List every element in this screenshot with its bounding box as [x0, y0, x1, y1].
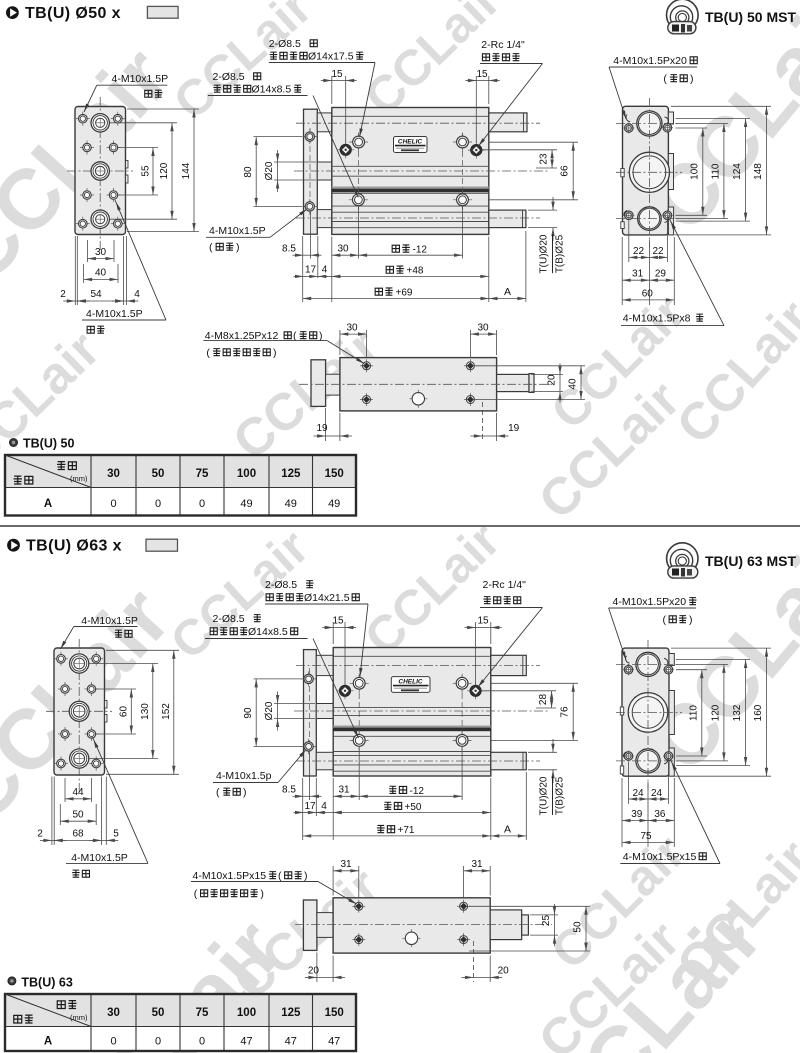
svg-text:47: 47: [328, 1036, 340, 1048]
svg-text:(: (: [194, 888, 198, 900]
svg-text:47: 47: [240, 1036, 252, 1048]
svg-text:22: 22: [633, 246, 645, 257]
svg-text:+69: +69: [396, 288, 413, 299]
svg-text:68: 68: [72, 829, 84, 840]
svg-text:120: 120: [159, 162, 170, 179]
svg-text:40: 40: [568, 378, 579, 390]
svg-text:2-Rc 1/4": 2-Rc 1/4": [483, 579, 527, 591]
svg-text:124: 124: [732, 163, 743, 180]
svg-text:CHELIC: CHELIC: [398, 139, 423, 146]
svg-text:100: 100: [237, 468, 256, 480]
svg-text:4-M10x1.5P: 4-M10x1.5P: [71, 852, 128, 864]
svg-text:47: 47: [285, 1036, 297, 1048]
svg-text:22: 22: [652, 246, 664, 257]
svg-text:20: 20: [547, 374, 558, 386]
svg-text:110: 110: [710, 163, 721, 179]
svg-text:T(B)Ø25: T(B)Ø25: [555, 234, 566, 273]
svg-text:TB(U) 50 MST: TB(U) 50 MST: [705, 9, 796, 25]
svg-text:15: 15: [477, 616, 489, 627]
svg-text:A: A: [44, 1036, 52, 1048]
svg-text:40: 40: [95, 268, 107, 279]
svg-text:150: 150: [325, 1007, 344, 1019]
svg-text:30: 30: [337, 244, 349, 255]
svg-text:0: 0: [110, 498, 116, 510]
svg-text:100: 100: [689, 163, 700, 180]
svg-text:+48: +48: [407, 266, 424, 277]
svg-text:4-M10x1.5Px20: 4-M10x1.5Px20: [613, 55, 687, 67]
svg-text:44: 44: [72, 787, 84, 798]
svg-text:4-M10x1.5Px15: 4-M10x1.5Px15: [193, 870, 267, 882]
svg-text:60: 60: [642, 289, 654, 300]
svg-text:30: 30: [107, 1007, 120, 1019]
svg-text:30: 30: [107, 468, 120, 480]
svg-text:24: 24: [651, 788, 663, 799]
svg-text:90: 90: [243, 707, 254, 719]
svg-text:T(B)Ø25: T(B)Ø25: [555, 776, 566, 815]
svg-text:Ø14x21.5: Ø14x21.5: [304, 592, 350, 604]
svg-text:4-M10x1.5Px15: 4-M10x1.5Px15: [623, 851, 697, 863]
svg-text:50: 50: [152, 1007, 165, 1019]
svg-text:4: 4: [134, 289, 140, 300]
svg-text:80: 80: [243, 166, 254, 178]
svg-text:17: 17: [305, 265, 317, 276]
svg-text:2-Ø8.5: 2-Ø8.5: [213, 613, 245, 625]
svg-text:31: 31: [338, 785, 350, 796]
svg-text:0: 0: [199, 1036, 205, 1048]
svg-text:Ø14x17.5: Ø14x17.5: [308, 51, 354, 63]
svg-text:36: 36: [654, 809, 666, 820]
svg-text:100: 100: [237, 1007, 256, 1019]
svg-text:50: 50: [152, 468, 165, 480]
svg-text:120: 120: [710, 704, 721, 721]
svg-text:): ): [236, 242, 240, 254]
svg-text:-12: -12: [413, 245, 428, 256]
svg-text:Ø14x8.5: Ø14x8.5: [248, 626, 288, 638]
svg-text:2-Ø8.5: 2-Ø8.5: [265, 579, 297, 591]
svg-text:-12: -12: [410, 786, 425, 797]
svg-text:TB(U) 63: TB(U) 63: [21, 976, 72, 990]
svg-text:(mm): (mm): [70, 1013, 88, 1022]
svg-text:76: 76: [560, 706, 571, 718]
svg-text:0: 0: [155, 1036, 161, 1048]
svg-text:Ø20: Ø20: [264, 161, 275, 180]
svg-text:CHELIC: CHELIC: [398, 679, 423, 686]
svg-text:2: 2: [60, 289, 66, 300]
svg-text:20: 20: [308, 966, 320, 977]
svg-text:29: 29: [655, 269, 667, 280]
svg-text:A: A: [504, 286, 511, 298]
svg-text:25: 25: [541, 915, 552, 927]
svg-text:30: 30: [95, 247, 107, 258]
svg-text:130: 130: [140, 703, 151, 720]
svg-text:4: 4: [322, 265, 328, 276]
svg-text:8.5: 8.5: [282, 785, 296, 796]
svg-text:23: 23: [539, 153, 550, 165]
svg-text:39: 39: [631, 809, 643, 820]
svg-text:75: 75: [640, 831, 652, 842]
svg-text:19: 19: [508, 423, 520, 434]
svg-text:60: 60: [119, 706, 130, 718]
svg-text:8.5: 8.5: [282, 244, 296, 255]
svg-text:(: (: [209, 242, 213, 254]
svg-text:): ): [243, 787, 247, 799]
svg-text:15: 15: [331, 69, 343, 80]
svg-text:31: 31: [632, 269, 644, 280]
svg-text:2-Ø8.5: 2-Ø8.5: [213, 71, 245, 83]
svg-text:TB(U) Ø50 x: TB(U) Ø50 x: [25, 5, 121, 22]
svg-text:(: (: [216, 787, 220, 799]
svg-text:(mm): (mm): [70, 474, 88, 483]
svg-text:): ): [273, 347, 277, 359]
svg-text:4-M10x1.5p: 4-M10x1.5p: [216, 770, 272, 782]
svg-text:110: 110: [688, 705, 699, 721]
svg-text:A: A: [504, 824, 511, 836]
svg-text:0: 0: [199, 498, 205, 510]
svg-text:20: 20: [498, 966, 510, 977]
svg-text:49: 49: [328, 498, 340, 510]
svg-text:): ): [304, 870, 308, 882]
svg-text:): ): [689, 614, 693, 626]
svg-text:TB(U) Ø63 x: TB(U) Ø63 x: [26, 538, 122, 555]
svg-text:Ø20: Ø20: [264, 701, 275, 720]
svg-text:31: 31: [471, 859, 483, 870]
svg-text:125: 125: [281, 468, 301, 480]
svg-text:24: 24: [632, 788, 644, 799]
svg-text:(: (: [278, 870, 282, 882]
svg-text:160: 160: [753, 704, 764, 721]
svg-text:50: 50: [573, 921, 584, 933]
svg-text:66: 66: [560, 165, 571, 177]
svg-text:15: 15: [332, 616, 344, 627]
svg-text:125: 125: [281, 1007, 301, 1019]
svg-text:5: 5: [113, 829, 119, 840]
svg-text:+50: +50: [405, 802, 422, 813]
svg-text:54: 54: [90, 289, 102, 300]
svg-text:4-M10x1.5Px8: 4-M10x1.5Px8: [623, 313, 691, 325]
svg-text:T(U)Ø20: T(U)Ø20: [539, 776, 550, 815]
svg-text:132: 132: [732, 704, 743, 721]
svg-text:4-M10x1.5Px20: 4-M10x1.5Px20: [613, 596, 687, 608]
svg-text:4-M10x1.5P: 4-M10x1.5P: [209, 225, 266, 237]
svg-text:148: 148: [753, 163, 764, 180]
svg-text:15: 15: [476, 69, 488, 80]
svg-text:28: 28: [538, 694, 549, 706]
svg-text:75: 75: [196, 1007, 209, 1019]
svg-text:(: (: [206, 347, 210, 359]
svg-text:49: 49: [285, 498, 297, 510]
svg-text:0: 0: [155, 498, 161, 510]
svg-text:4-M10x1.5P: 4-M10x1.5P: [86, 308, 143, 320]
svg-text:17: 17: [304, 801, 316, 812]
svg-text:50: 50: [72, 810, 84, 821]
svg-text:2-Rc 1/4": 2-Rc 1/4": [481, 39, 525, 51]
svg-text:Ø14x8.5: Ø14x8.5: [252, 84, 292, 96]
svg-text:): ): [260, 888, 264, 900]
svg-text:144: 144: [181, 162, 192, 179]
svg-text:): ): [690, 73, 694, 85]
svg-text:0: 0: [110, 1036, 116, 1048]
svg-text:30: 30: [477, 323, 489, 334]
svg-text:19: 19: [316, 423, 328, 434]
svg-text:31: 31: [340, 859, 352, 870]
svg-text:152: 152: [161, 703, 172, 720]
svg-text:T(U)Ø20: T(U)Ø20: [539, 234, 550, 273]
svg-text:TB(U) 50: TB(U) 50: [23, 437, 74, 451]
svg-text:150: 150: [325, 468, 344, 480]
svg-text:75: 75: [196, 468, 209, 480]
svg-text:4-M10x1.5P: 4-M10x1.5P: [112, 73, 169, 85]
svg-text:A: A: [44, 498, 52, 510]
svg-text:2-Ø8.5: 2-Ø8.5: [269, 38, 301, 50]
svg-text:4: 4: [321, 801, 327, 812]
svg-text:55: 55: [141, 165, 152, 177]
svg-text:4-M10x1.5P: 4-M10x1.5P: [81, 615, 138, 627]
svg-text:49: 49: [240, 498, 252, 510]
svg-text:+71: +71: [398, 825, 415, 836]
svg-text:(: (: [663, 614, 667, 626]
svg-text:30: 30: [346, 323, 358, 334]
svg-text:2: 2: [37, 829, 43, 840]
svg-text:(: (: [663, 73, 667, 85]
svg-text:TB(U) 63 MST: TB(U) 63 MST: [705, 553, 796, 569]
